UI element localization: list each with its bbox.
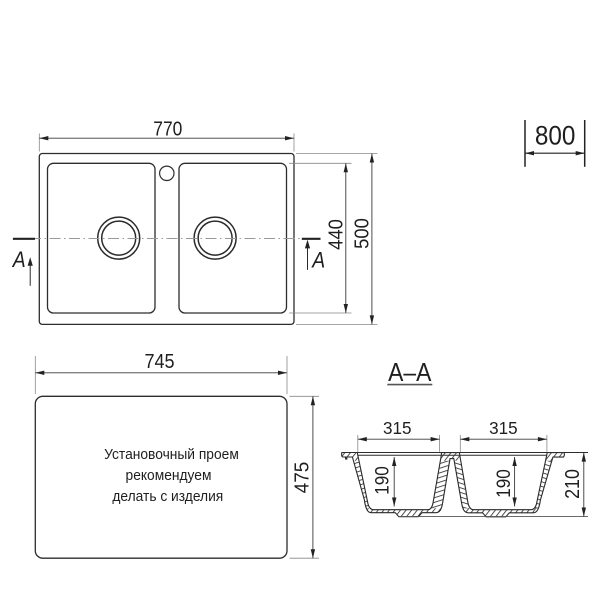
svg-text:770: 770 xyxy=(153,118,182,141)
svg-text:475: 475 xyxy=(291,462,314,494)
svg-text:800: 800 xyxy=(535,121,576,150)
svg-text:745: 745 xyxy=(144,351,174,373)
svg-text:315: 315 xyxy=(383,418,412,439)
svg-text:A–A: A–A xyxy=(388,359,432,388)
svg-text:190: 190 xyxy=(372,466,393,495)
svg-text:440: 440 xyxy=(326,219,348,250)
svg-text:315: 315 xyxy=(489,418,518,439)
svg-text:A: A xyxy=(310,248,325,272)
svg-text:рекомендуем: рекомендуем xyxy=(126,468,212,485)
svg-text:500: 500 xyxy=(352,218,374,249)
svg-text:190: 190 xyxy=(493,469,514,498)
svg-text:делать с изделия: делать с изделия xyxy=(112,489,223,506)
svg-text:210: 210 xyxy=(562,469,584,499)
svg-text:A: A xyxy=(11,248,26,272)
svg-text:Установочный проем: Установочный проем xyxy=(104,447,239,464)
